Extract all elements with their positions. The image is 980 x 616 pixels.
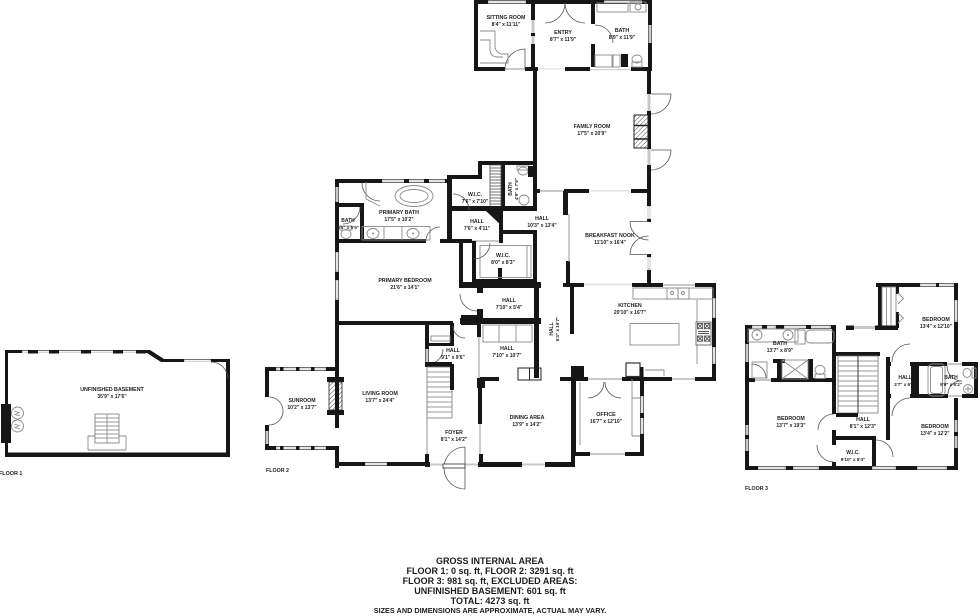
svg-text:7'10" x 5'4": 7'10" x 5'4" [496, 305, 523, 311]
svg-text:9'1" x 9'6": 9'1" x 9'6" [441, 355, 465, 361]
svg-text:35'9" x 17'6": 35'9" x 17'6" [97, 394, 127, 400]
svg-text:SUNROOM: SUNROOM [288, 398, 315, 404]
svg-text:KITCHEN: KITCHEN [618, 303, 642, 309]
svg-text:BATH: BATH [341, 218, 355, 224]
svg-text:DINING AREA: DINING AREA [510, 415, 545, 421]
svg-text:FLOOR 1: 0 sq. ft, FLOOR 2: 32: FLOOR 1: 0 sq. ft, FLOOR 2: 3291 sq. ft [406, 566, 573, 576]
svg-text:BATH: BATH [944, 375, 958, 381]
svg-text:FAMILY ROOM: FAMILY ROOM [574, 124, 611, 130]
svg-text:FLOOR 1: FLOOR 1 [0, 471, 22, 477]
svg-text:5'3" x 16'7": 5'3" x 16'7" [555, 317, 560, 341]
svg-text:HALL: HALL [535, 216, 550, 222]
svg-text:BEDROOM: BEDROOM [921, 424, 949, 430]
svg-text:FOYER: FOYER [445, 430, 463, 436]
svg-text:PRIMARY BEDROOM: PRIMARY BEDROOM [378, 278, 432, 284]
svg-text:HALL: HALL [856, 417, 871, 423]
svg-text:4'9" x 7'9": 4'9" x 7'9" [514, 178, 519, 200]
svg-text:HALL: HALL [500, 346, 515, 352]
svg-text:BEDROOM: BEDROOM [777, 416, 805, 422]
svg-text:13'4" x 12'10": 13'4" x 12'10" [920, 324, 953, 330]
svg-text:BATH: BATH [615, 28, 629, 34]
svg-text:20'10" x 16'7": 20'10" x 16'7" [614, 310, 647, 316]
svg-text:13'7" x 8'9": 13'7" x 8'9" [767, 348, 794, 354]
svg-text:13'4" x 12'2": 13'4" x 12'2" [920, 431, 950, 437]
svg-text:HALL: HALL [898, 375, 911, 381]
svg-text:TOTAL: 4273 sq. ft: TOTAL: 4273 sq. ft [451, 596, 530, 606]
svg-text:7'6" x 4'11": 7'6" x 4'11" [464, 226, 491, 232]
svg-text:11'10" x 16'4": 11'10" x 16'4" [594, 240, 626, 246]
svg-text:HALL: HALL [470, 219, 485, 225]
svg-text:7'6" x 7'10": 7'6" x 7'10" [462, 199, 489, 205]
svg-text:8'9" x 11'9": 8'9" x 11'9" [609, 35, 636, 41]
svg-text:9'10" x 5'4": 9'10" x 5'4" [841, 457, 865, 462]
svg-text:HALL: HALL [502, 298, 517, 304]
svg-text:10'2" x 13'7": 10'2" x 13'7" [287, 405, 317, 411]
svg-text:10'3" x 13'4": 10'3" x 13'4" [527, 223, 557, 229]
svg-text:8'4" x 11'11": 8'4" x 11'11" [492, 22, 521, 28]
svg-text:3'5" x 5'9": 3'5" x 5'9" [337, 225, 359, 230]
svg-text:W.I.C.: W.I.C. [496, 253, 511, 259]
svg-text:BREAKFAST NOOK: BREAKFAST NOOK [585, 233, 635, 239]
svg-text:9'9" x 6'2": 9'9" x 6'2" [940, 382, 962, 387]
svg-text:UNFINISHED BASEMENT: UNFINISHED BASEMENT [80, 387, 144, 393]
svg-text:8'7" x 11'9": 8'7" x 11'9" [550, 37, 577, 43]
svg-text:8'1" x 12'3": 8'1" x 12'3" [850, 424, 877, 430]
svg-text:W.I.C.: W.I.C. [846, 450, 860, 456]
svg-text:13'7" x 19'3": 13'7" x 19'3" [776, 423, 806, 429]
svg-text:LIVING ROOM: LIVING ROOM [362, 391, 398, 397]
svg-text:FLOOR 3: 981 sq. ft, EXCLUDED: FLOOR 3: 981 sq. ft, EXCLUDED AREAS: [403, 576, 578, 586]
svg-text:8'0" x 8'3": 8'0" x 8'3" [491, 260, 515, 266]
svg-text:HALL: HALL [446, 348, 461, 354]
svg-text:ENTRY: ENTRY [554, 30, 572, 36]
svg-text:FLOOR 2: FLOOR 2 [266, 468, 289, 474]
svg-text:GROSS INTERNAL AREA: GROSS INTERNAL AREA [436, 556, 545, 566]
svg-text:21'6" x 14'1": 21'6" x 14'1" [390, 285, 420, 291]
svg-text:FLOOR 3: FLOOR 3 [745, 486, 768, 492]
svg-text:13'9" x 14'2": 13'9" x 14'2" [512, 422, 542, 428]
svg-text:BEDROOM: BEDROOM [922, 317, 950, 323]
svg-text:SIZES AND DIMENSIONS ARE APPRO: SIZES AND DIMENSIONS ARE APPROXIMATE, AC… [374, 606, 607, 615]
svg-text:17'5" x 20'9": 17'5" x 20'9" [577, 131, 607, 137]
svg-text:BATH: BATH [773, 341, 787, 347]
svg-text:W.I.C.: W.I.C. [468, 192, 483, 198]
svg-text:PRIMARY BATH: PRIMARY BATH [379, 210, 419, 216]
svg-text:16'7" x 12'10": 16'7" x 12'10" [590, 419, 623, 425]
svg-text:8'1" x 14'2": 8'1" x 14'2" [441, 437, 468, 443]
svg-text:3'7" x 6'2": 3'7" x 6'2" [894, 382, 916, 387]
svg-text:13'7" x 24'4": 13'7" x 24'4" [365, 398, 395, 404]
svg-text:UNFINISHED BASEMENT: 601 sq. f: UNFINISHED BASEMENT: 601 sq. ft [414, 586, 566, 596]
svg-text:17'5" x 10'2": 17'5" x 10'2" [384, 217, 414, 223]
svg-text:SITTING ROOM: SITTING ROOM [487, 15, 526, 21]
svg-text:7'10" x 10'7": 7'10" x 10'7" [492, 353, 522, 359]
svg-text:OFFICE: OFFICE [596, 412, 616, 418]
